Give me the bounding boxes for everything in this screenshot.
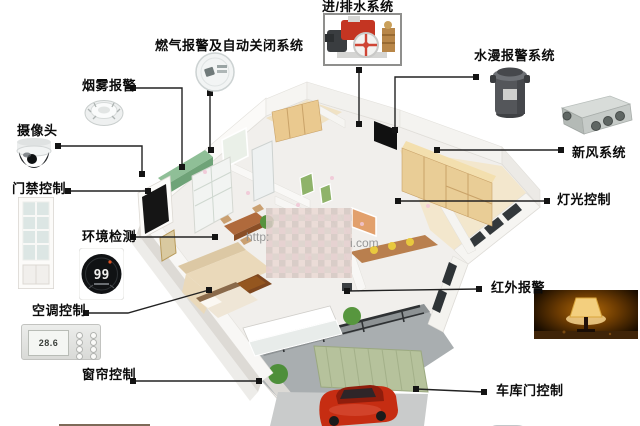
balcony-tree (343, 307, 361, 325)
label-garage-door: 车库门控制 (496, 384, 564, 398)
label-water-supply-drain: 进/排水系统 (322, 0, 394, 14)
label-gas-alarm: 燃气报警及自动关闭系统 (155, 39, 304, 53)
smart-home-diagram: http: i.com (0, 0, 640, 426)
camera-image (13, 138, 55, 173)
red-car (319, 385, 398, 426)
watermark-prefix: http: (246, 230, 269, 244)
line-smoke (133, 88, 182, 167)
smoke-detector-image (84, 97, 124, 127)
ac-display: 28.6 (28, 330, 69, 356)
label-camera: 摄像头 (17, 124, 58, 138)
label-ac-control: 空调控制 (32, 304, 86, 318)
label-fresh-air: 新风系统 (572, 146, 626, 160)
door-image (18, 197, 54, 289)
ac-panel-image: 28.6 (21, 324, 101, 360)
lamp-photo (534, 290, 638, 339)
label-lighting: 灯光控制 (557, 193, 611, 207)
thermostat-image: 99 (79, 248, 124, 300)
label-infrared-alarm: 红外报警 (491, 281, 545, 295)
hall-mirror (252, 141, 274, 201)
flood-alarm-image (487, 62, 533, 120)
water-pump-image (323, 13, 402, 66)
label-smoke-alarm: 烟雾报警 (82, 79, 136, 93)
label-door-access: 门禁控制 (12, 182, 66, 196)
watermark-mosaic (266, 208, 352, 278)
label-curtain-control: 窗帘控制 (82, 368, 136, 382)
thermostat-value: 99 (94, 268, 110, 283)
watermark-suffix: i.com (350, 236, 379, 250)
fresh-air-unit-image (556, 88, 636, 138)
gas-detector-image (195, 52, 235, 92)
label-flood-alarm: 水漫报警系统 (474, 49, 555, 63)
line-camera (58, 146, 142, 174)
label-environment: 环境检测 (82, 230, 136, 244)
